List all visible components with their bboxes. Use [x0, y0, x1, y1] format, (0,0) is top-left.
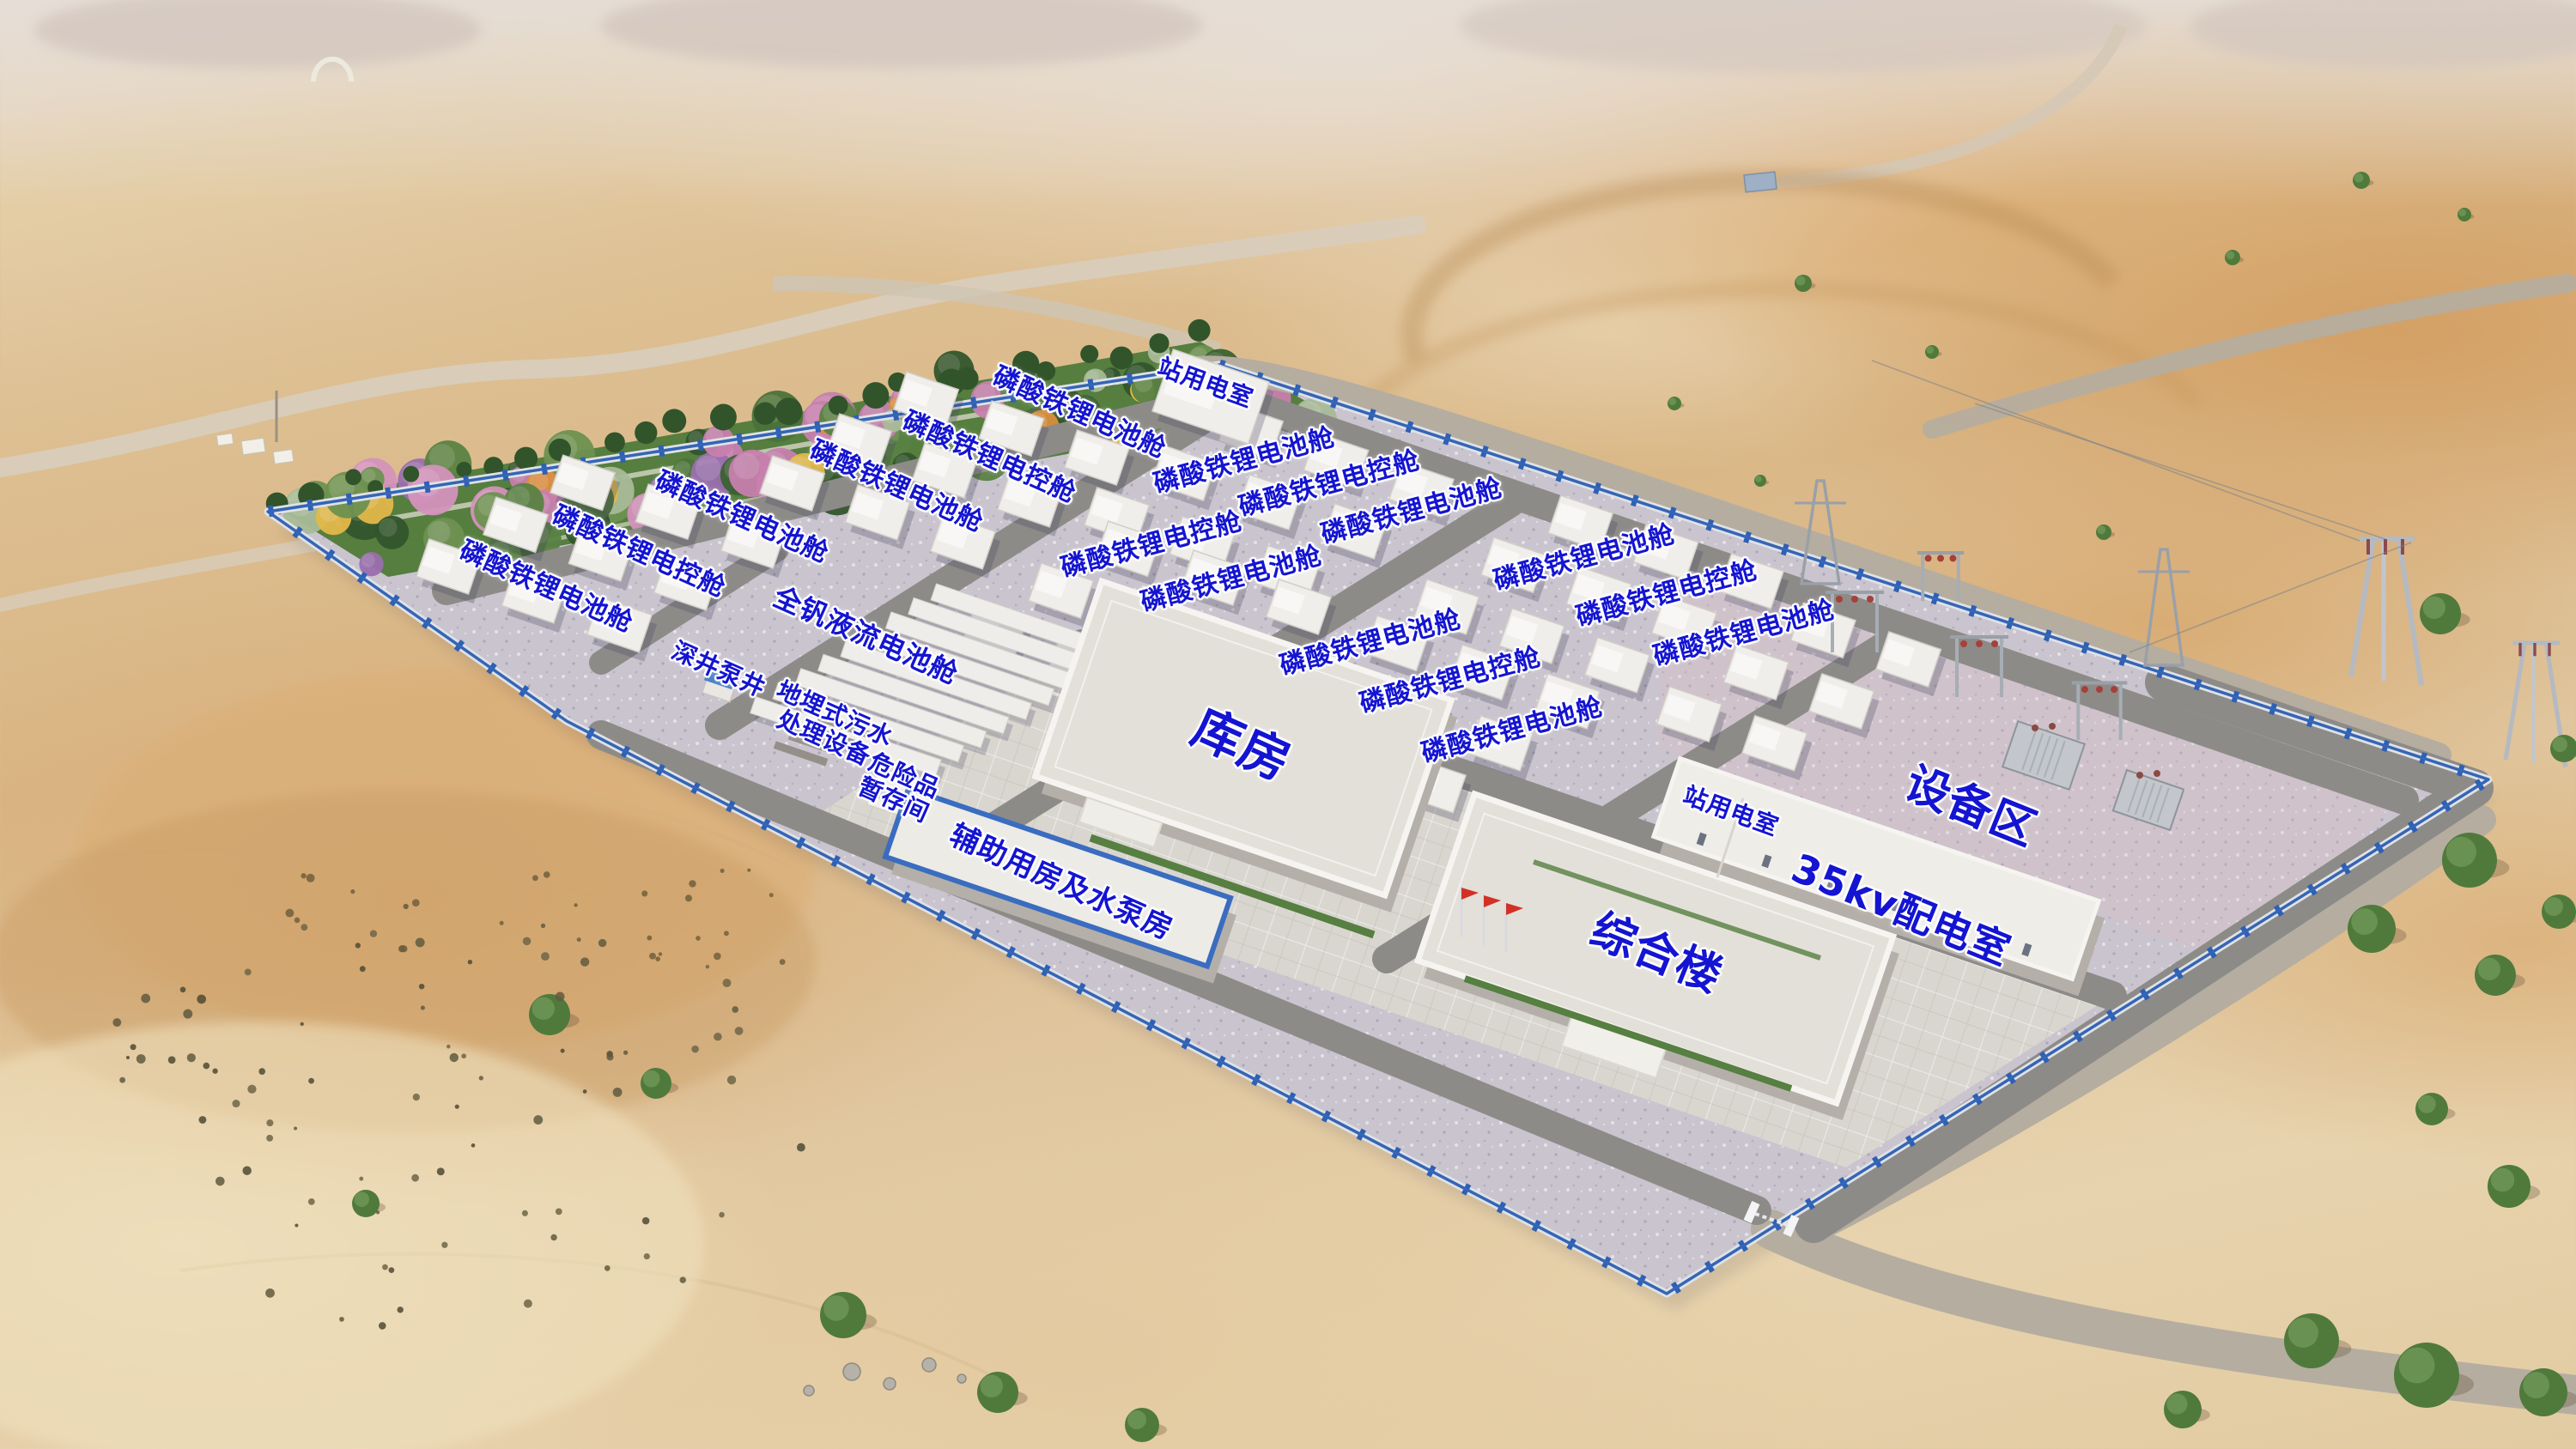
rocks: [804, 1358, 966, 1396]
site-drawing: [0, 0, 2576, 1449]
aerial-site-scene: 站用电室磷酸铁锂电池舱磷酸铁锂电控舱磷酸铁锂电池舱磷酸铁锂电池舱磷酸铁锂电控舱磷…: [0, 0, 2576, 1449]
